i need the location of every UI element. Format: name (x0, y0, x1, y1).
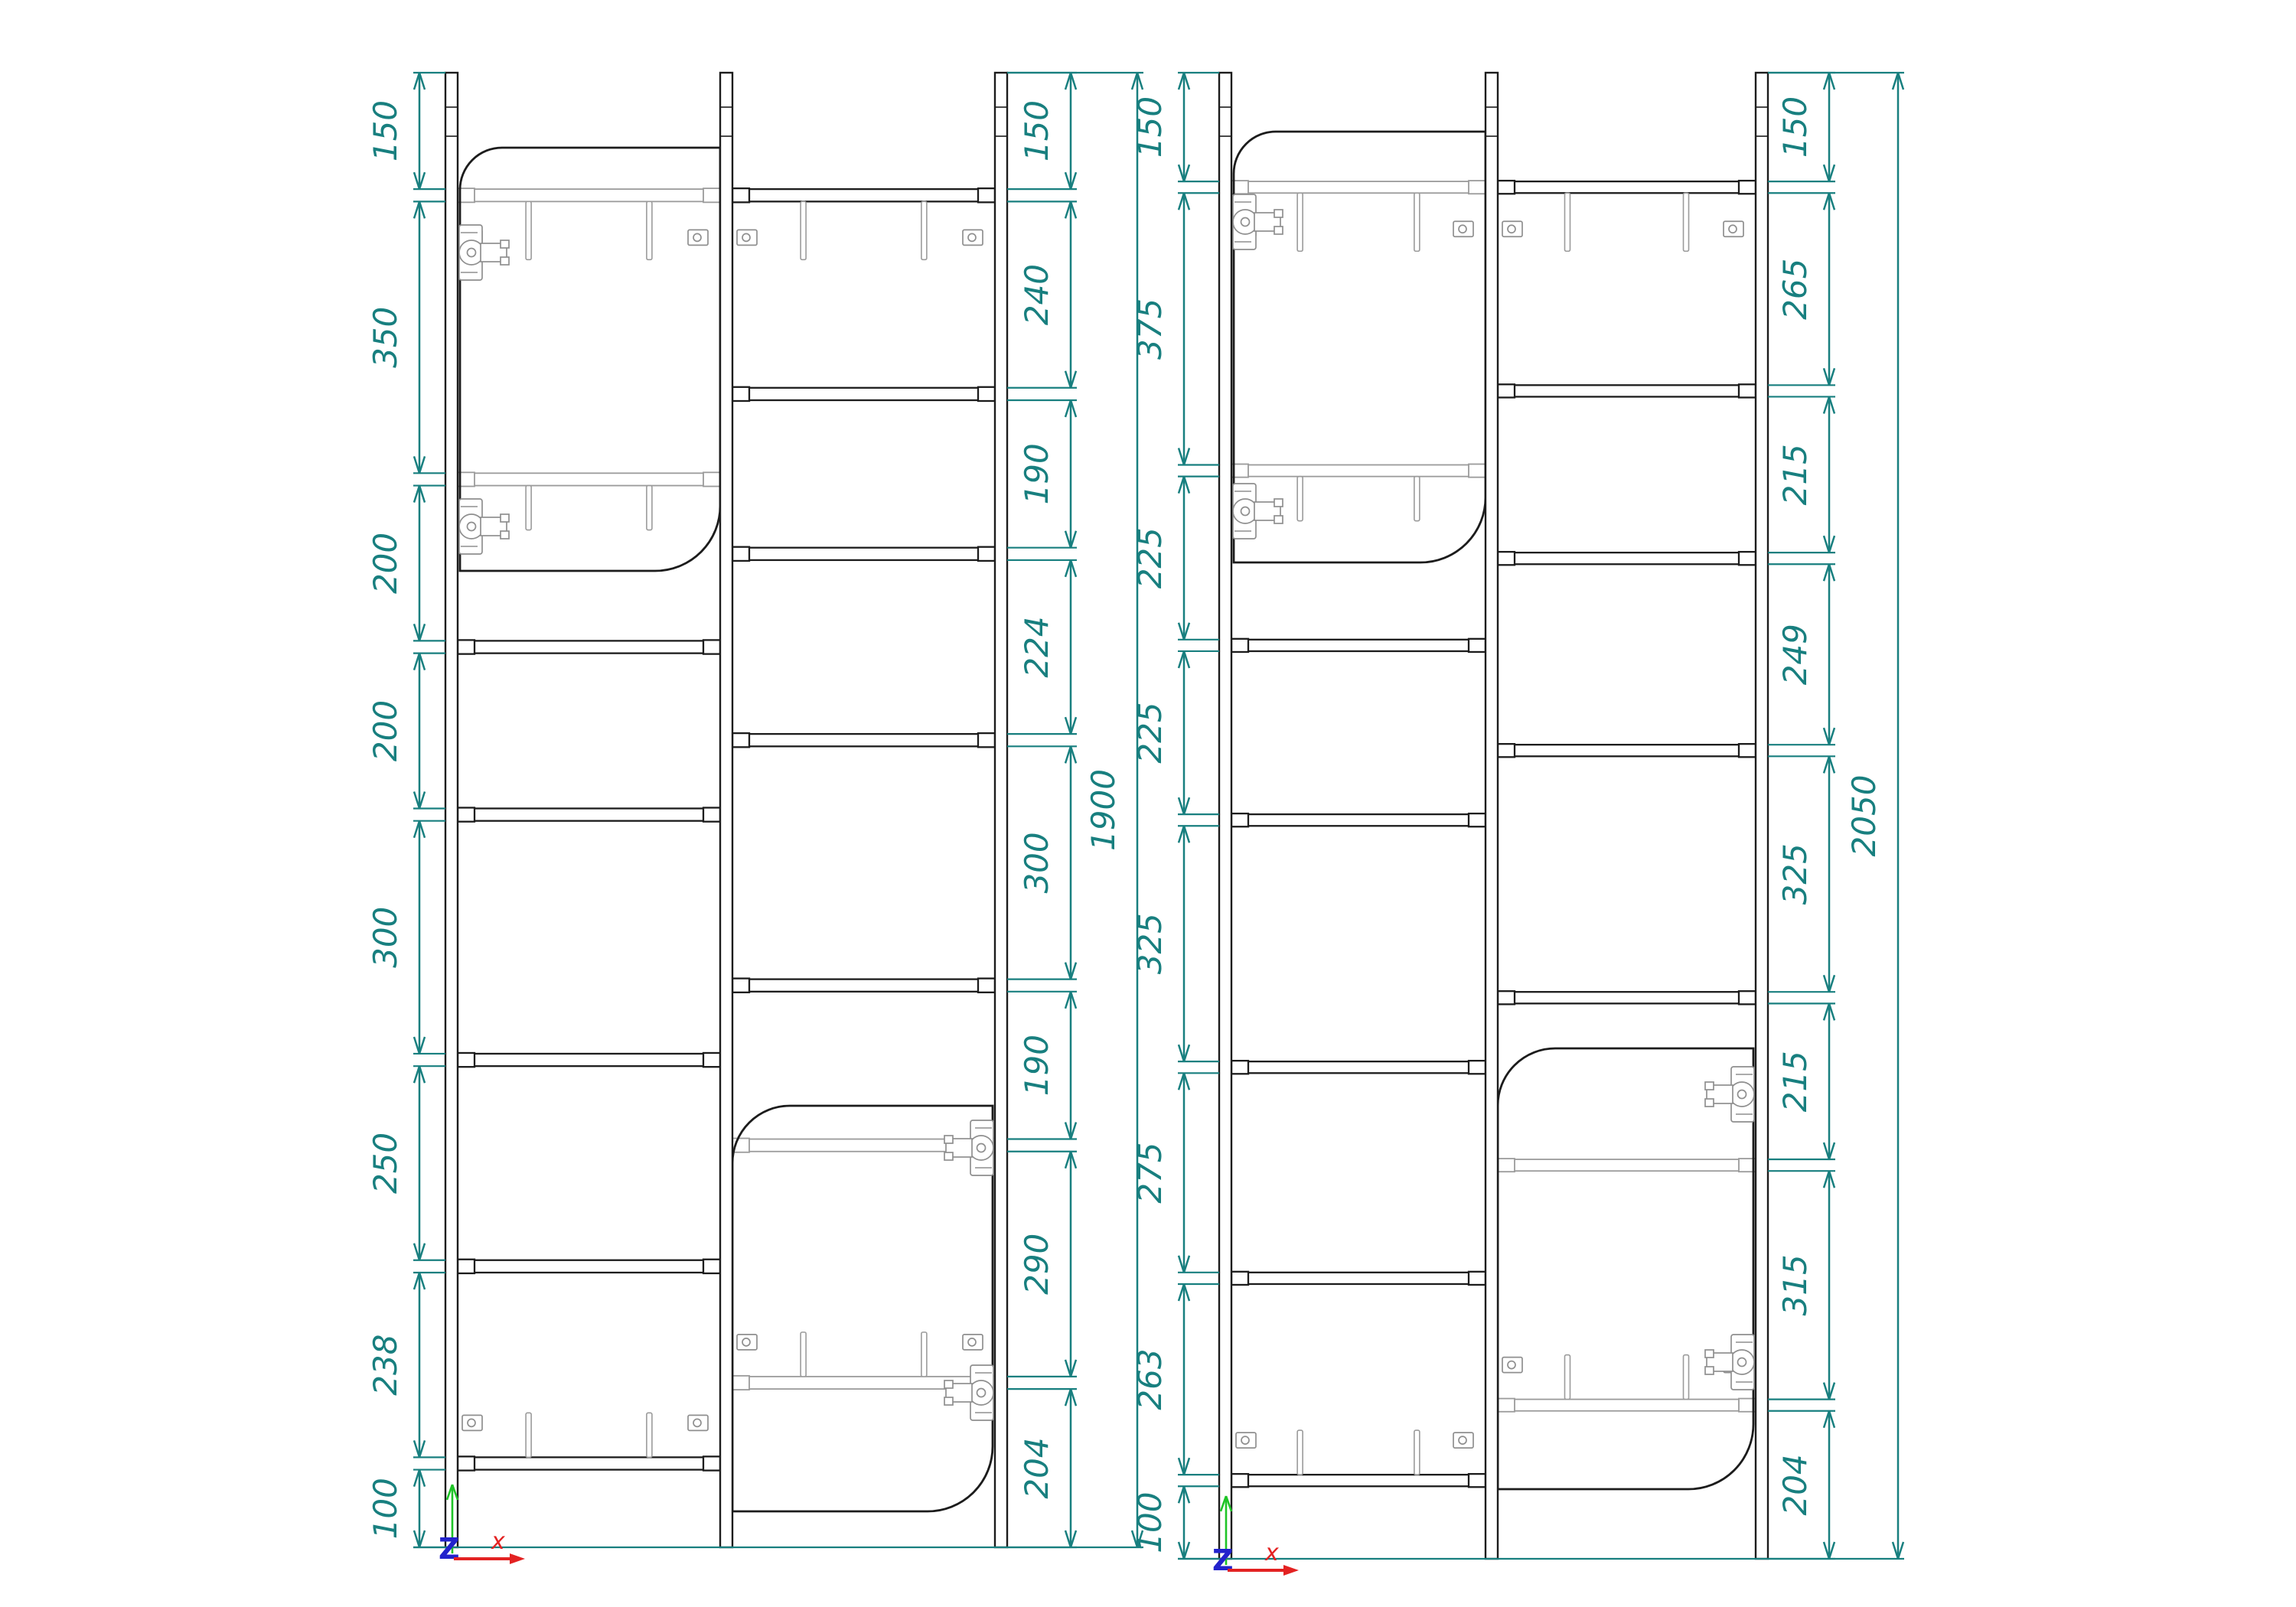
hinge-cup-center (1241, 507, 1250, 516)
bracket-hole (1729, 225, 1737, 233)
dim-label: 238 (367, 1335, 404, 1396)
dim-label: 224 (1018, 616, 1055, 677)
shelf-endcap (1469, 1474, 1486, 1487)
dim-label: 1900 (1084, 769, 1122, 851)
dim-label: 200 (367, 533, 404, 594)
shelf-endcap (703, 1260, 720, 1273)
hinge-screw (944, 1397, 953, 1405)
dim-label: 263 (1131, 1348, 1169, 1410)
shelf-endcap (458, 640, 475, 654)
shelf-endcap (458, 1456, 475, 1470)
dim-label: 215 (1776, 1051, 1814, 1112)
dim-label: 300 (367, 907, 404, 968)
dim-label: 100 (367, 1478, 404, 1539)
shelf (458, 473, 720, 485)
dowel-pin (1414, 1430, 1420, 1475)
bracket-hole (1459, 1436, 1466, 1444)
dowel-pin (526, 1413, 531, 1457)
dowel-pin (801, 1332, 806, 1377)
carcass-layer (1219, 73, 1768, 1559)
dim-label: 375 (1131, 298, 1169, 360)
shelf-bracket-icon (688, 230, 708, 245)
cad-drawing-page: 1503502002003002502381001502401902243001… (0, 0, 2296, 1607)
shelf (732, 980, 995, 992)
bracket-hole (468, 1419, 475, 1426)
shelf-endcap (732, 1376, 749, 1390)
hinge-screw (501, 531, 509, 539)
dim-label: 190 (1018, 1035, 1055, 1096)
hinge-screw (1705, 1350, 1714, 1358)
hinge-screw (501, 514, 509, 522)
hinge-screw (501, 240, 509, 248)
hinge-screw (501, 257, 509, 265)
dowel-pin (1414, 193, 1420, 251)
door-hinge-icon (944, 1365, 993, 1420)
dim-label: 240 (1018, 264, 1055, 325)
dim-label: 315 (1776, 1254, 1814, 1315)
door-hinge-icon (1233, 484, 1283, 539)
dim-label: 300 (1018, 832, 1055, 893)
bracket-hole (968, 1338, 976, 1346)
shelf (1231, 464, 1486, 476)
shelf (1498, 1400, 1756, 1411)
shelf (1231, 640, 1486, 651)
shelf-bracket-icon (737, 1335, 757, 1350)
shelf-bracket-icon (1453, 221, 1473, 236)
shelf-endcap (703, 472, 720, 486)
shelf-endcap (703, 1053, 720, 1067)
dowel-pin (1684, 193, 1689, 251)
origin-marker: Zx (439, 1485, 525, 1566)
dim-label: 250 (367, 1133, 404, 1194)
shelf-endcap (732, 979, 749, 993)
shelf (1231, 814, 1486, 826)
hinge-cup-center (977, 1389, 986, 1397)
x-axis-label: x (491, 1528, 505, 1555)
shelf-endcap (1469, 813, 1486, 826)
dowel-pin (801, 201, 806, 259)
shelf-endcap (1739, 552, 1756, 565)
hinge-cup-center (468, 249, 476, 257)
shelf-endcap (1739, 384, 1756, 397)
shelf-endcap (458, 807, 475, 821)
hinge-screw (944, 1136, 953, 1143)
shelf-endcap (1231, 1061, 1248, 1074)
x-axis-arrow (510, 1553, 525, 1564)
shelf-endcap (732, 188, 749, 202)
shelf-endcap (978, 387, 995, 401)
shelf-bracket-icon (737, 230, 757, 245)
shelf-endcap (978, 188, 995, 202)
shelf-bracket-icon (1502, 1358, 1522, 1373)
shelf (732, 734, 995, 746)
dowel-pin (647, 201, 652, 259)
hinge-cup-center (1738, 1358, 1746, 1367)
x-axis-arrow (1283, 1565, 1299, 1576)
shelf-endcap (1498, 1159, 1515, 1172)
shelf-endcap (732, 547, 749, 561)
shelf-endcap (732, 387, 749, 401)
shelf-endcap (703, 807, 720, 821)
shelf (1231, 181, 1486, 193)
shelf-endcap (1498, 552, 1515, 565)
x-axis-label: x (1264, 1540, 1279, 1566)
hinge-screw (1274, 227, 1283, 234)
shelf-endcap (1469, 181, 1486, 194)
cabinet-door-outline (460, 148, 720, 571)
shelf (458, 1054, 720, 1066)
door-hinge-icon (459, 225, 509, 280)
shelf (1498, 992, 1756, 1003)
hinge-screw (1274, 516, 1283, 523)
dim-label: 2050 (1845, 775, 1883, 857)
dim-label: 150 (367, 100, 404, 161)
dim-label: 325 (1776, 843, 1814, 905)
shelf (732, 548, 995, 560)
door-hinge-icon (944, 1120, 993, 1175)
shelf-endcap (1469, 639, 1486, 652)
shelf (1231, 1061, 1486, 1073)
shelf-endcap (1498, 991, 1515, 1004)
door-hinge-icon (1233, 194, 1283, 249)
dowel-pin (1564, 1355, 1570, 1400)
shelf-endcap (1469, 1061, 1486, 1074)
shelf (1498, 1159, 1756, 1171)
shelf-bracket-icon (1453, 1433, 1473, 1448)
hinge-screw (1705, 1367, 1714, 1374)
cabinet-panel (1486, 73, 1498, 1559)
dim-label: 204 (1776, 1454, 1814, 1515)
dim-label: 325 (1131, 913, 1169, 974)
shelf-endcap (1739, 181, 1756, 194)
door-hinge-icon (1705, 1335, 1754, 1390)
shelf-endcap (1231, 639, 1248, 652)
shelf-bracket-icon (1724, 221, 1743, 236)
hinge-cup-center (1241, 218, 1250, 227)
hinge-cup-center (977, 1144, 986, 1152)
bracket-hole (693, 1419, 701, 1426)
dim-label: 225 (1131, 702, 1169, 763)
dim-label: 150 (1018, 100, 1055, 161)
shelf-endcap (1231, 1474, 1248, 1487)
bracket-hole (742, 1338, 750, 1346)
dim-label: 100 (1131, 1492, 1169, 1553)
hinge-screw (944, 1152, 953, 1160)
cabinet-door-outline (1234, 132, 1486, 562)
shelf (1498, 181, 1756, 193)
shelf-endcap (1739, 744, 1756, 757)
dowel-pin (647, 1413, 652, 1457)
shelf-endcap (1469, 1272, 1486, 1285)
shelf (458, 1260, 720, 1273)
cad-drawing-canvas[interactable]: 1503502002003002502381001502401902243001… (0, 0, 2296, 1607)
shelf-endcap (978, 547, 995, 561)
dowel-pin (1297, 193, 1303, 251)
shelf (1231, 1475, 1486, 1486)
shelf-endcap (1498, 744, 1515, 757)
shelf-endcap (1231, 1272, 1248, 1285)
dowel-pin (647, 486, 652, 530)
cabinet-panel (720, 73, 732, 1547)
bracket-hole (1241, 1436, 1249, 1444)
shelf (1498, 745, 1756, 756)
shelf (458, 808, 720, 820)
shelf (458, 189, 720, 201)
dim-label: 350 (367, 307, 404, 368)
dowel-pin (921, 1332, 927, 1377)
dim-label: 290 (1018, 1234, 1055, 1295)
shelf-bracket-icon (1502, 221, 1522, 236)
cabinet-panel (995, 73, 1007, 1547)
shelf-bracket-icon (963, 1335, 983, 1350)
hinge-screw (1274, 210, 1283, 217)
dim-label: 150 (1776, 96, 1814, 158)
dim-label: 225 (1131, 527, 1169, 588)
cabinet-view-2050: 1503752252253252752631001502652152493252… (1131, 73, 1904, 1577)
shelf (458, 1457, 720, 1469)
bracket-hole (968, 233, 976, 241)
dim-label: 150 (1131, 96, 1169, 158)
hinge-cup-center (1738, 1090, 1746, 1099)
shelf-endcap (1498, 1399, 1515, 1412)
shelf (1231, 1273, 1486, 1284)
shelf-endcap (458, 1053, 475, 1067)
hinge-screw (1705, 1082, 1714, 1090)
dim-label: 249 (1776, 624, 1814, 685)
shelf (458, 641, 720, 653)
shelf (732, 189, 995, 201)
hinge-screw (944, 1380, 953, 1388)
hinge-screw (1705, 1099, 1714, 1107)
shelf (1498, 385, 1756, 396)
dim-label: 215 (1776, 444, 1814, 505)
shelf-endcap (732, 733, 749, 747)
shelf-endcap (978, 733, 995, 747)
carcass-layer (445, 73, 1007, 1547)
cabinet-view-1900: 1503502002003002502381001502401902243001… (367, 73, 1143, 1566)
cabinet-panel (1219, 73, 1231, 1559)
shelf-endcap (1231, 813, 1248, 826)
shelf (1498, 553, 1756, 564)
dowel-pin (921, 201, 927, 259)
shelf-endcap (1498, 181, 1515, 194)
shelf-bracket-icon (1236, 1433, 1256, 1448)
shelf-endcap (703, 188, 720, 202)
shelf-bracket-icon (688, 1415, 708, 1430)
shelf-bracket-icon (462, 1415, 482, 1430)
shelf-endcap (703, 1456, 720, 1470)
shelf-endcap (978, 979, 995, 993)
shelf-bracket-icon (963, 230, 983, 245)
dowel-pin (1684, 1355, 1689, 1400)
bracket-hole (1459, 225, 1466, 233)
dowel-pin (526, 486, 531, 530)
dim-label: 275 (1131, 1142, 1169, 1203)
bracket-hole (1508, 1361, 1515, 1369)
shelf-endcap (1469, 464, 1486, 477)
dowel-pin (1297, 477, 1303, 521)
door-hinge-icon (1705, 1067, 1754, 1122)
z-axis-label: Z (439, 1532, 460, 1566)
bracket-hole (693, 233, 701, 241)
shelf-endcap (458, 1260, 475, 1273)
cabinet-door-outline (732, 1106, 993, 1511)
dim-label: 265 (1776, 259, 1814, 320)
shelf (732, 388, 995, 400)
door-hinge-icon (459, 499, 509, 554)
dim-label: 204 (1018, 1437, 1055, 1498)
shelf-endcap (1498, 384, 1515, 397)
cabinet-door-outline (1498, 1048, 1753, 1489)
hinge-screw (1274, 499, 1283, 507)
z-axis-label: Z (1212, 1543, 1234, 1577)
shelf-endcap (703, 640, 720, 654)
dowel-pin (1414, 477, 1420, 521)
shelf-endcap (1739, 991, 1756, 1004)
hinge-cup-center (468, 523, 476, 531)
cabinet-panel (445, 73, 458, 1547)
dowel-pin (1297, 1430, 1303, 1475)
cabinet-panel (1756, 73, 1768, 1559)
origin-marker: Zx (1212, 1496, 1299, 1577)
dowel-pin (526, 201, 531, 259)
dowel-pin (1564, 193, 1570, 251)
bracket-hole (1508, 225, 1515, 233)
dim-label: 190 (1018, 443, 1055, 504)
bracket-hole (742, 233, 750, 241)
dim-label: 200 (367, 700, 404, 761)
